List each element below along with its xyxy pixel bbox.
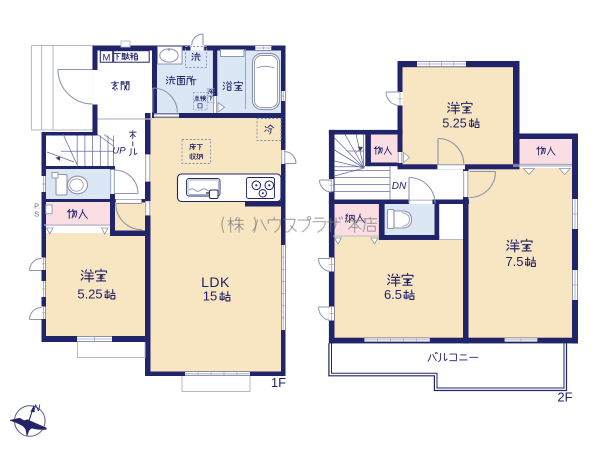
svg-text:DN: DN <box>392 181 407 192</box>
svg-text:S: S <box>34 210 39 219</box>
svg-text:5.25: 5.25 <box>77 287 102 302</box>
svg-text:2F: 2F <box>557 390 572 405</box>
svg-text:UP: UP <box>112 146 126 157</box>
svg-text:M: M <box>103 52 111 63</box>
svg-text:15: 15 <box>203 289 217 304</box>
svg-text:7.5: 7.5 <box>505 254 523 269</box>
svg-text:LDK: LDK <box>201 274 230 290</box>
svg-text:1F: 1F <box>271 375 286 390</box>
svg-text:N: N <box>33 403 40 414</box>
svg-text:5.25: 5.25 <box>442 117 466 131</box>
svg-text:6.5: 6.5 <box>384 287 402 302</box>
